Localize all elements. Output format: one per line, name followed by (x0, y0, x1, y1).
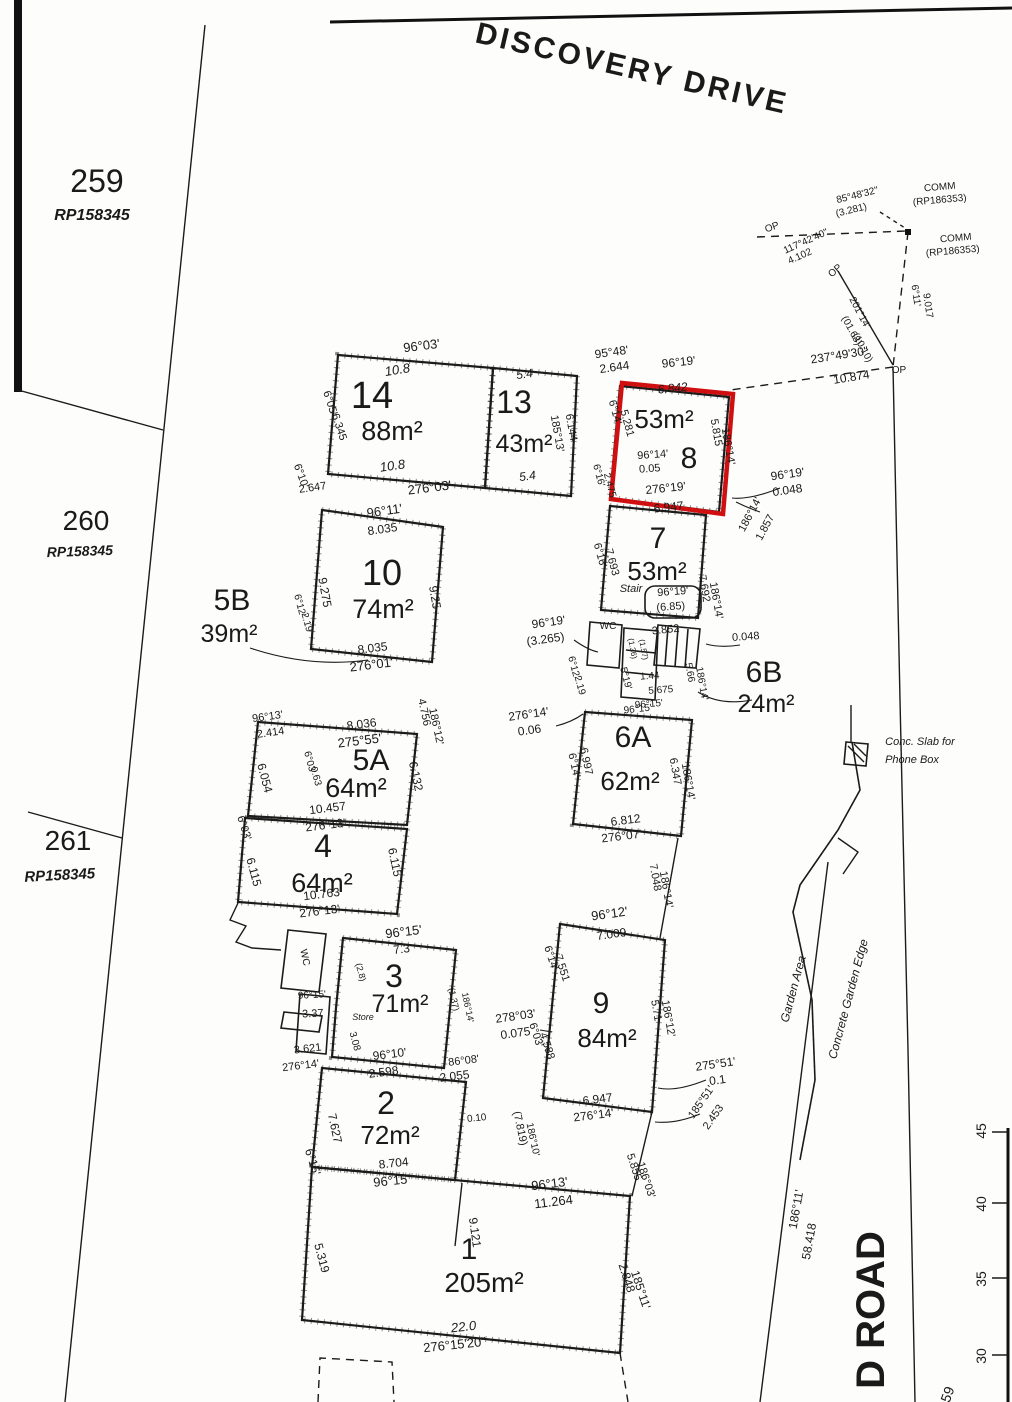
dimension-label: 6.144 (563, 413, 580, 442)
dimension-label: 276°07' (601, 827, 643, 846)
dim-leader (706, 644, 740, 646)
dimension-label: 9.275 (315, 576, 334, 608)
lot-2-number: 2 (377, 1085, 395, 1121)
garden-area-line (760, 862, 828, 1402)
dashed-boundary-continuation (620, 1353, 628, 1402)
lot-6a-number: 6A (615, 721, 652, 754)
dimension-label: 186°14' (719, 427, 737, 466)
dimension-label: 6.132 (406, 760, 426, 793)
lot-5b-number: 5B (214, 584, 251, 617)
parcel-261: 261 (45, 825, 92, 856)
dimension-label: 10.874 (832, 367, 871, 387)
dimension-label: 86°08' (448, 1053, 480, 1069)
dimension-label: 0.1 (708, 1072, 727, 1088)
lot-4-number: 4 (314, 828, 332, 864)
road-name-top: DISCOVERY DRIVE (472, 17, 791, 121)
phone-box-note: Conc. Slab for (885, 736, 956, 748)
dimension-label: 275°51' (694, 1054, 736, 1073)
dimension-label: 96°12' (590, 904, 628, 924)
garden-edge-note: Concrete Garden Edge (825, 937, 871, 1060)
dimension-label: 6.115 (243, 856, 264, 888)
plan-text-labels: DISCOVERY DRIVE259RP158345260RP158345261… (24, 17, 989, 1402)
lot-7-number: 7 (650, 522, 667, 555)
lot-5a-area: 64m² (325, 773, 387, 803)
dimension-label: 7.627 (325, 1112, 345, 1145)
dimension-label: 6°15' (302, 1147, 324, 1177)
lot-13-area: 43m² (496, 430, 553, 458)
dashed-garden-bed (318, 1358, 394, 1402)
dimension-label: 96°14' (637, 448, 669, 462)
dimension-label: 96°03' (402, 336, 440, 355)
dimension-label: 22.0 (449, 1318, 477, 1336)
lot-6b-number: 6B (746, 656, 783, 689)
dimension-label: 5°19' (617, 666, 633, 691)
dimension-label: 5.319 (311, 1242, 332, 1275)
northeast-corner (730, 212, 915, 1402)
irregular-boundary (230, 903, 281, 950)
dimension-label: 1.44 (640, 670, 661, 682)
lot-14-area: 88m² (361, 416, 423, 446)
dimension-label: 5.4 (515, 366, 534, 382)
dimension-label: 5.675 (648, 684, 674, 697)
dimension-label: 276°13' (299, 902, 341, 921)
dimension-label: 7.009 (596, 925, 628, 943)
road-name-right: D ROAD (849, 1231, 893, 1389)
dimension-label: 9.25 (426, 585, 444, 611)
dimension-label: 96°11' (366, 501, 403, 521)
dimension-label: 96°19' (657, 585, 689, 599)
lot-6b-area: 24m² (738, 690, 795, 718)
dimension-label: 3.08 (347, 1031, 363, 1053)
lot-3-number: 3 (385, 958, 403, 994)
corner-peg (905, 229, 911, 235)
dimension-label: 96°15' (623, 703, 652, 717)
dimension-label: 3.37 (302, 1007, 324, 1020)
wc-label: WC (600, 621, 617, 632)
comm-ref-plan: (RP186353) (912, 193, 967, 209)
scale-tick-35: 35 (973, 1271, 989, 1287)
lot-2-area: 72m² (360, 1120, 420, 1150)
wc-label: WC (297, 948, 311, 967)
comm-ref: COMM (924, 181, 957, 195)
scale-tick-40: 40 (973, 1196, 989, 1212)
dimension-label: 8.035 (367, 520, 399, 538)
dim-leader (556, 714, 583, 726)
dimension-label: 96°15' (298, 989, 327, 1001)
parcel-261-plan: RP158345 (24, 865, 96, 886)
scale-tick-45: 45 (973, 1123, 989, 1139)
lot-14-number: 14 (351, 375, 393, 417)
dimension-label: 186°11' (786, 1189, 807, 1230)
dimension-label: 3.852 (651, 623, 680, 638)
slab-hatch (848, 744, 866, 762)
dimension-label: 96°15' (384, 922, 422, 941)
op-peg: OP (763, 220, 781, 235)
dimension-label: 10.457 (308, 799, 346, 817)
dimension-label: 2.19 (572, 675, 588, 697)
lot-9-number: 9 (593, 987, 610, 1020)
scale-tick-30: 30 (973, 1348, 989, 1364)
parcel-260: 260 (63, 505, 110, 536)
dimension-label: 276°15'20" (422, 1334, 487, 1356)
dimension-label: 0.06 (517, 721, 542, 738)
dimension-label: 6.054 (254, 762, 275, 795)
boundary-dashed (893, 232, 908, 367)
scanned-survey-plan-page: DISCOVERY DRIVE259RP158345260RP158345261… (0, 0, 1012, 1402)
lot-6a-area: 62m² (600, 766, 660, 796)
dimension-label: 0.075 (500, 1024, 532, 1042)
dimension-label: 186°12' (426, 707, 445, 746)
dimension-label: 0.048 (772, 481, 804, 499)
garden-area-note: Garden Area (778, 954, 809, 1024)
lot-9-area: 84m² (577, 1023, 637, 1053)
dimension-label: (1.36) (626, 637, 639, 659)
dimension-label: 1.857 (754, 513, 778, 543)
comm-ref: COMM (940, 232, 973, 246)
lot-5b-area: 39m² (201, 620, 258, 648)
dimension-label: 5.4 (518, 468, 537, 484)
dim-leader (574, 640, 598, 652)
top-road-line (330, 8, 1012, 22)
dimension-label: 2.19 (299, 612, 315, 634)
dimension-label: 276°03' (407, 477, 452, 497)
lot-1-area: 205m² (444, 1267, 523, 1298)
dimension-label: 276°14' (507, 704, 549, 723)
parcel-259: 259 (70, 163, 123, 199)
dimension-label: 276°01' (349, 654, 394, 674)
parcel-259-260-divider (18, 390, 163, 430)
dimension-label: 58.418 (799, 1222, 819, 1261)
scale-ruler (992, 1128, 1008, 1402)
lot-8-number: 8 (681, 442, 698, 475)
dimension-label: 2.644 (599, 358, 631, 376)
dimension-label: 2.598 (368, 1063, 400, 1081)
east-road-boundary (893, 367, 915, 1402)
garden-edge-hatch (793, 742, 860, 1160)
dimension-label: 7.3 (392, 941, 411, 957)
lot-7-area: 53m² (627, 556, 687, 586)
dimension-label: 6.115 (385, 846, 405, 878)
dimension-label: 276°14' (281, 1058, 319, 1074)
lot-3-area: 71m² (372, 990, 429, 1018)
dimension-label: 0.10 (466, 1112, 487, 1125)
dimension-label: 10.8 (379, 456, 407, 474)
dimension-label: 0.048 (732, 630, 760, 644)
left-margin-bar (14, 0, 22, 392)
boundary-dashed (757, 231, 906, 237)
dimension-label: 186°14' (693, 666, 710, 701)
dimension-label: 96°15' (373, 1171, 411, 1190)
dimension-label: 96°10' (372, 1045, 407, 1063)
lot-10-area: 74m² (352, 594, 414, 624)
dimension-label: 276°14' (573, 1106, 615, 1125)
ruler-ticks (992, 1132, 1008, 1355)
survey-plan-canvas: DISCOVERY DRIVE259RP158345260RP158345261… (0, 0, 1012, 1402)
west-boundary (65, 25, 205, 1402)
dimension-label: 0.05 (639, 462, 661, 475)
corner-leader (880, 212, 905, 228)
dimension-label: 3.621 (293, 1041, 322, 1056)
dimension-label: 276°19' (645, 479, 687, 497)
dimension-label: 0.63 (308, 766, 324, 788)
garden-edge-bump (838, 838, 858, 874)
dimension-label: (6.85) (656, 600, 686, 614)
dimension-label: 6°11' (909, 284, 923, 307)
stair-label: Stair (620, 583, 644, 595)
lot-8-area: 53m² (634, 404, 694, 434)
dimension-label: (3.265) (526, 629, 566, 648)
parcel-259-plan: RP158345 (54, 207, 131, 224)
dimension-label: 186°14' (460, 991, 476, 1023)
dimension-label: 96°19' (531, 613, 566, 632)
dim-leader (658, 1080, 706, 1089)
dimension-label: 2.647 (298, 480, 327, 496)
dimension-label: 6.842 (657, 379, 689, 396)
store-label: Store (352, 1012, 374, 1022)
dimension-label: 8.704 (378, 1154, 410, 1171)
lot-13-number: 13 (496, 384, 532, 420)
dimension-label: 2.414 (256, 725, 285, 741)
concrete-garden-edge-line (793, 742, 860, 1160)
dimension-label: (2.8) (354, 962, 368, 982)
dimension-label: 9.017 (920, 292, 934, 319)
comm-ref-plan: (RP186353) (925, 244, 980, 260)
dimension-label: 96°19' (661, 353, 696, 370)
op-peg: OP (892, 365, 907, 376)
parcel-260-plan: RP158345 (46, 542, 113, 560)
lot-10-number: 10 (362, 552, 402, 593)
dimension-label: 59 (937, 1384, 957, 1402)
phone-box-note: Phone Box (885, 754, 939, 766)
dimension-label: 10.8 (384, 360, 412, 379)
dimension-label: 11.264 (533, 1192, 573, 1212)
